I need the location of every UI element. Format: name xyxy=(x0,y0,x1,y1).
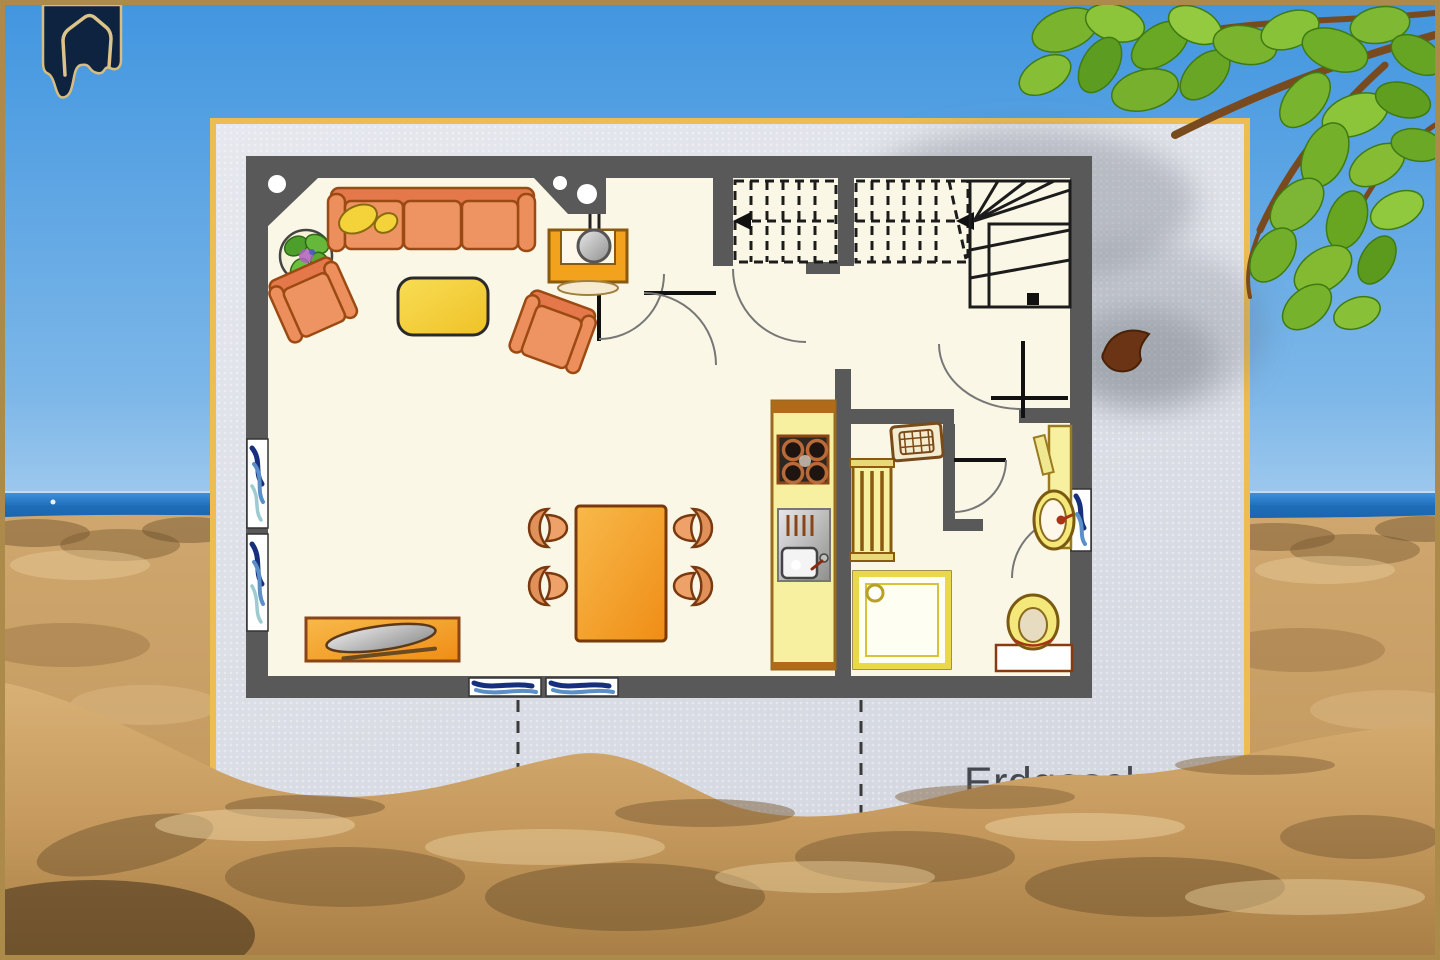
floorplan-drawing xyxy=(216,124,1244,832)
section-lines xyxy=(518,700,861,816)
shower xyxy=(853,571,951,669)
window-bottom-1 xyxy=(469,678,541,696)
radiator xyxy=(850,459,894,561)
window-left-1 xyxy=(247,439,268,528)
kitchen-counter xyxy=(772,401,835,669)
washing-machine xyxy=(891,423,944,461)
floor-label: Erdgeschoss xyxy=(964,759,1218,808)
tv-icon xyxy=(578,230,610,262)
window-left-2 xyxy=(247,534,268,631)
sideboard xyxy=(306,618,459,663)
sofa xyxy=(328,188,535,251)
shower-drain xyxy=(867,585,883,601)
stove-icon xyxy=(778,436,828,483)
window-bottom-2 xyxy=(546,678,618,696)
fallen-leaf-silhouette xyxy=(1102,331,1149,372)
floorplan-card: Erdgeschoss xyxy=(210,118,1250,838)
beach-floorplan-scene: Erdgeschoss xyxy=(0,0,1440,960)
coffee-table xyxy=(398,278,488,335)
dining-table xyxy=(576,506,666,641)
sink-icon xyxy=(778,509,830,581)
distant-boat-dot xyxy=(51,500,56,505)
